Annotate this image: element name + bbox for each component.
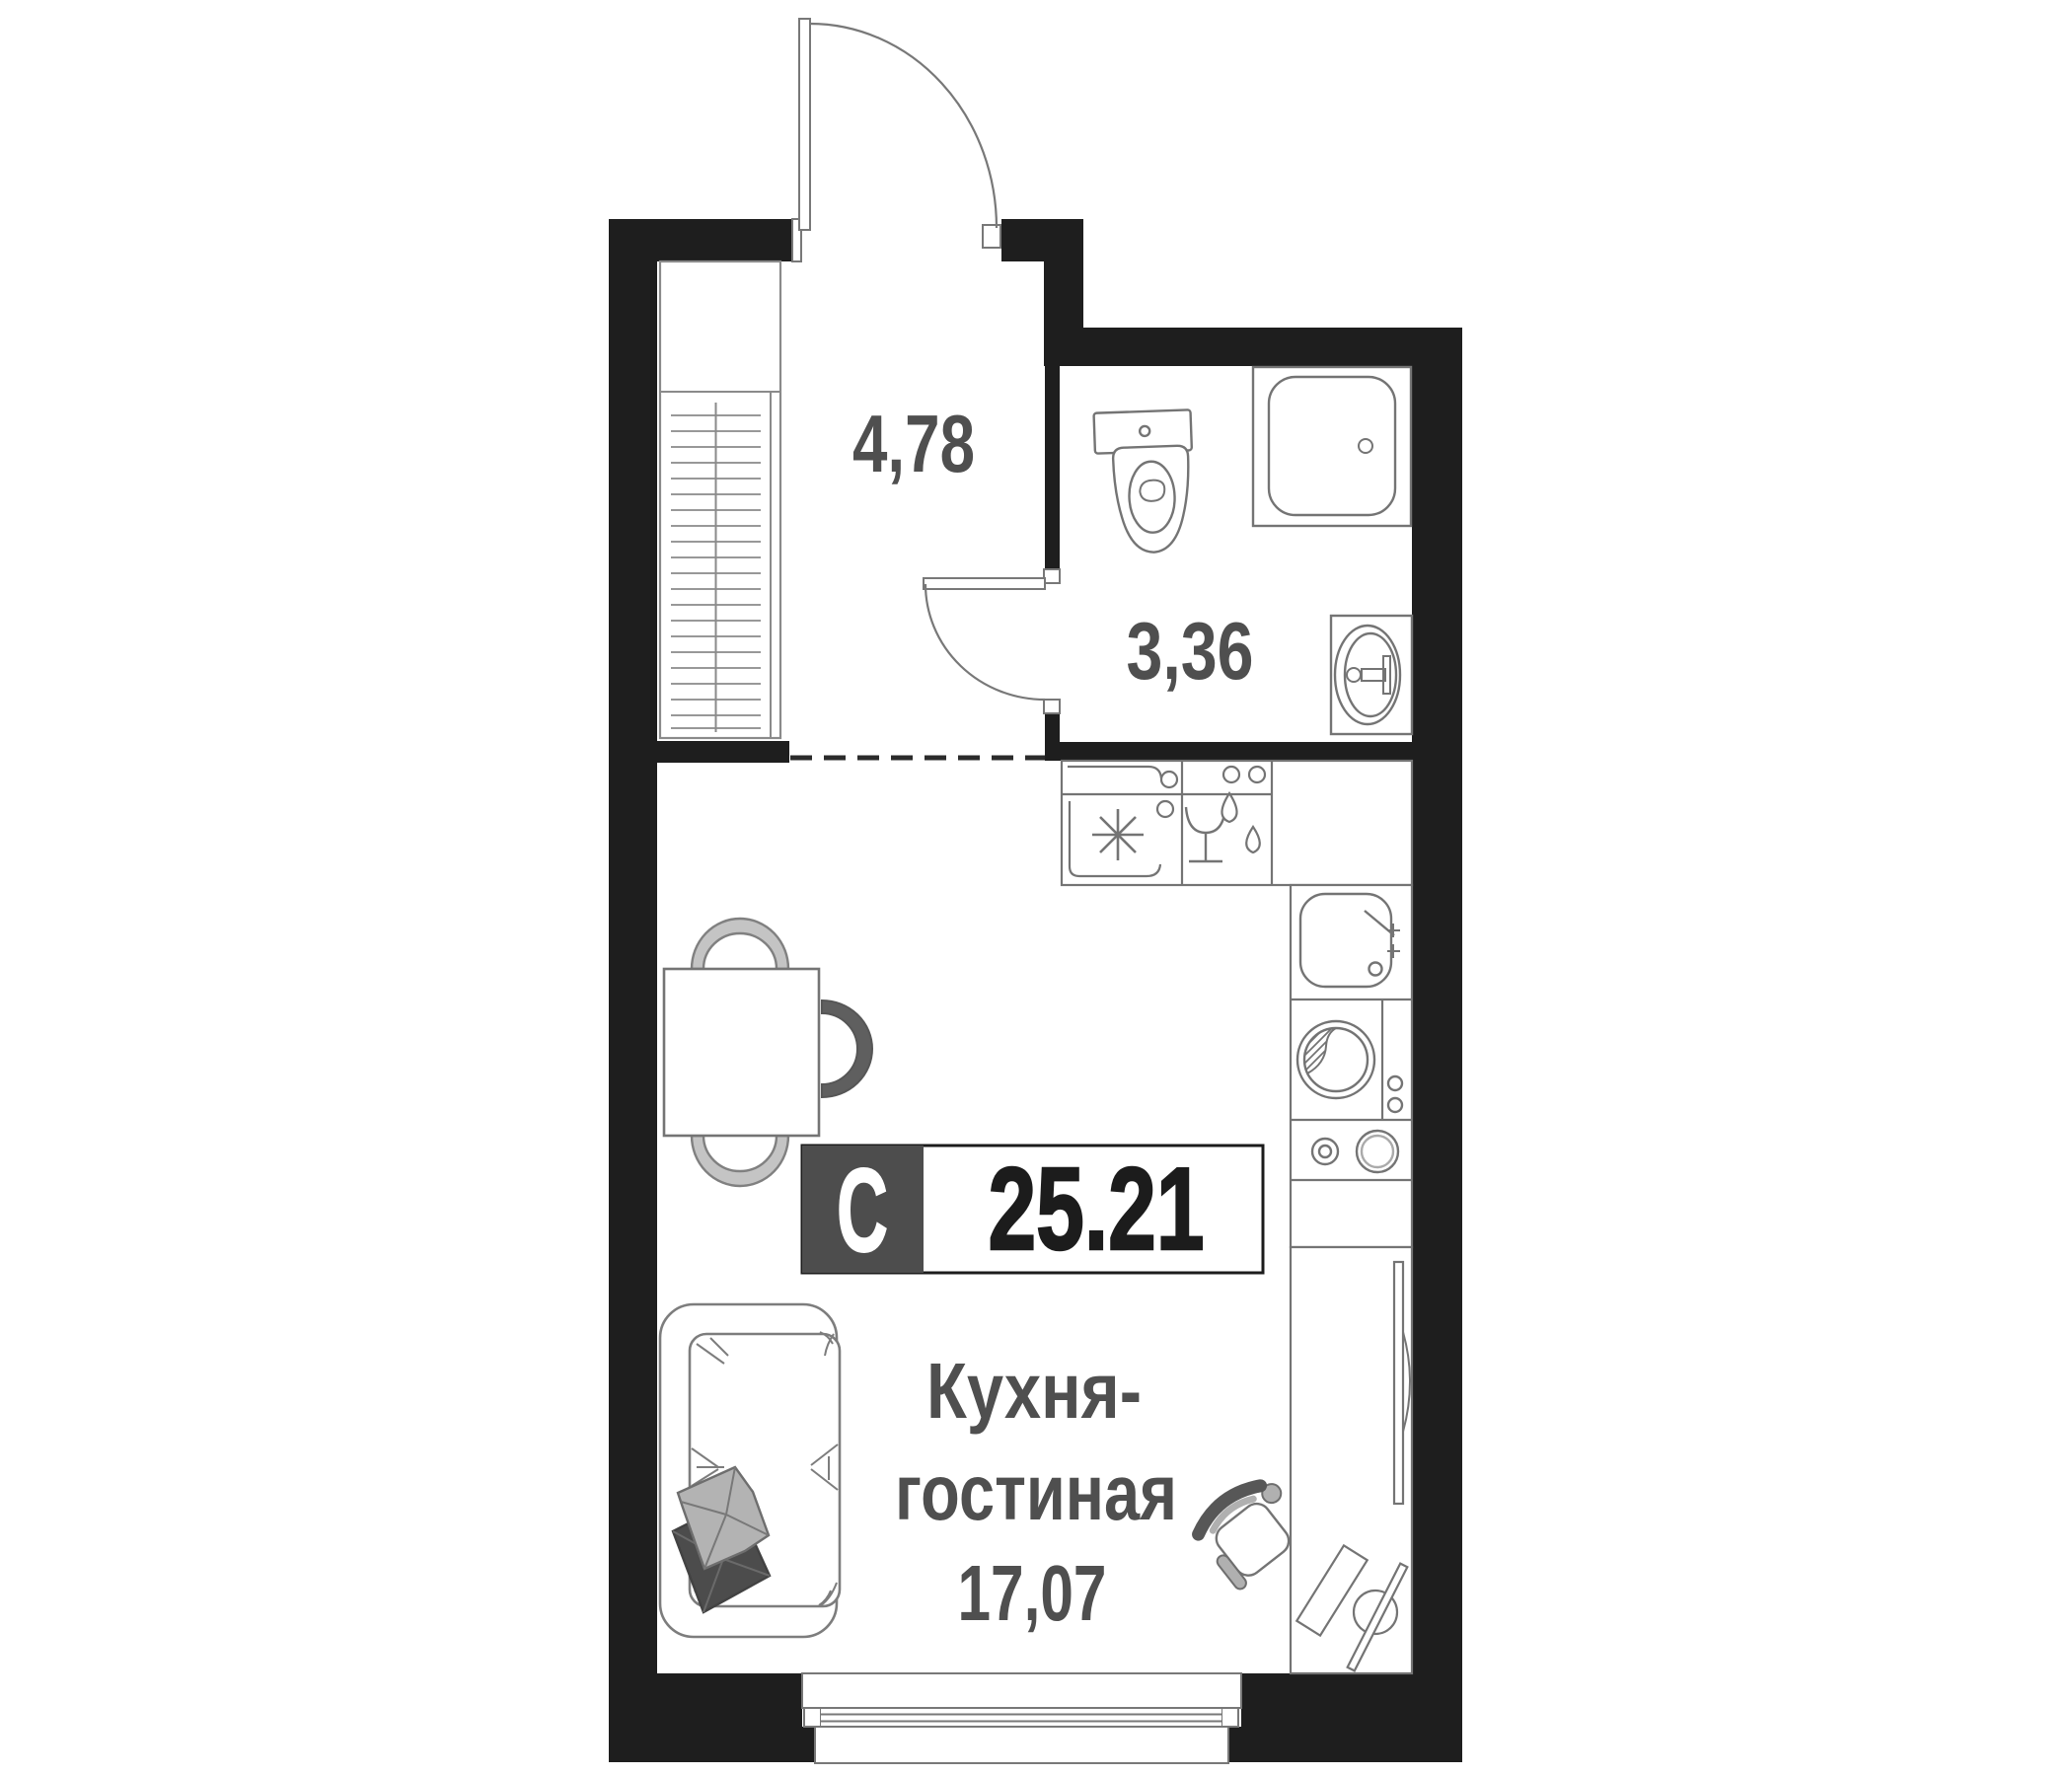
svg-text:4,78: 4,78 — [852, 398, 975, 489]
svg-text:С: С — [837, 1145, 888, 1277]
svg-text:17,07: 17,07 — [958, 1549, 1107, 1637]
svg-text:Кухня-: Кухня- — [926, 1347, 1142, 1435]
svg-text:гостиная: гостиная — [895, 1448, 1177, 1536]
svg-text:25.21: 25.21 — [989, 1144, 1205, 1275]
svg-text:3,36: 3,36 — [1127, 605, 1254, 697]
